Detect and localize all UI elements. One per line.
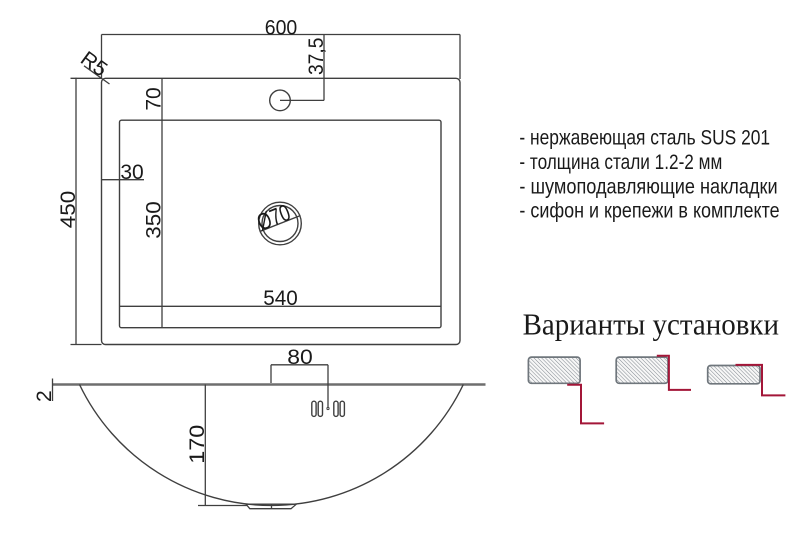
svg-text:70: 70: [143, 87, 166, 110]
svg-text:600: 600: [265, 16, 298, 39]
svg-text:30: 30: [120, 161, 143, 184]
svg-text:350: 350: [143, 201, 166, 239]
svg-text:- шумоподавляющие накладки: - шумоподавляющие накладки: [519, 175, 777, 198]
svg-text:80: 80: [287, 346, 313, 369]
svg-text:R5: R5: [76, 47, 111, 81]
svg-text:- нержавеющая сталь SUS 201: - нержавеющая сталь SUS 201: [519, 127, 770, 150]
svg-text:- толщина стали 1.2-2 мм: - толщина стали 1.2-2 мм: [519, 151, 722, 174]
svg-text:- сифон и крепежи в комплекте: - сифон и крепежи в комплекте: [519, 199, 779, 222]
svg-text:Варианты установки: Варианты установки: [523, 308, 779, 342]
svg-text:450: 450: [57, 191, 80, 229]
svg-text:37,5: 37,5: [305, 38, 328, 76]
svg-text:170: 170: [186, 425, 209, 464]
svg-text:2: 2: [33, 390, 56, 402]
svg-text:540: 540: [263, 287, 298, 310]
